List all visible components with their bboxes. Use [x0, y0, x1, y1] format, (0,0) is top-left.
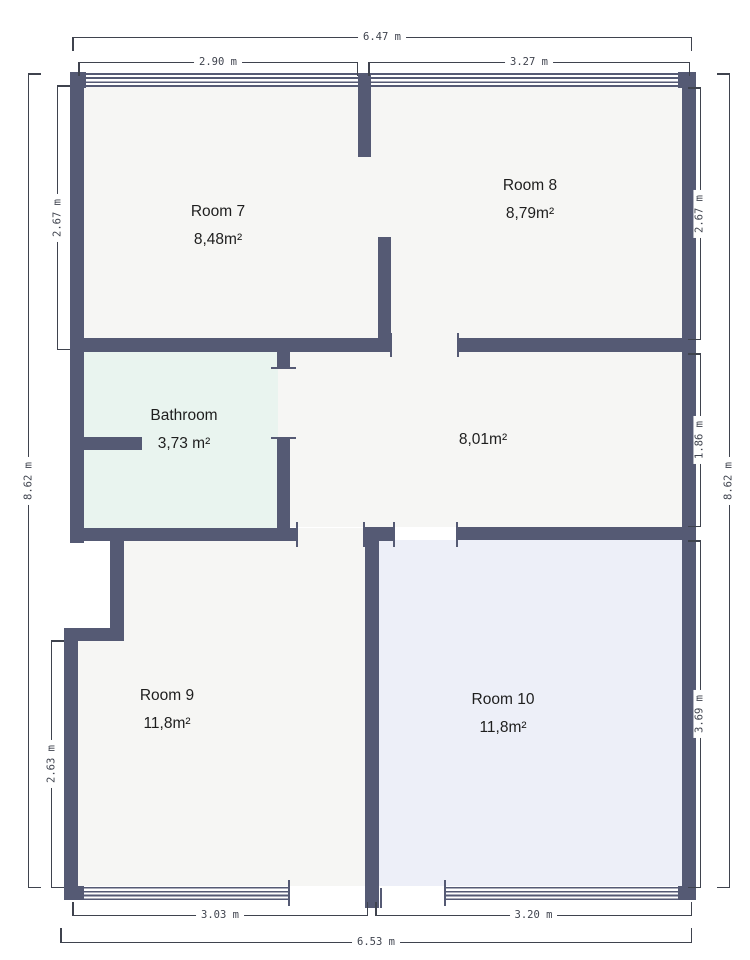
door-jamb-hall-top-left	[390, 333, 392, 357]
dimension-right-lower: 3.69 m	[688, 540, 701, 888]
door-jamb-bathroom-top	[271, 367, 296, 369]
dimension-left-upper: 2.67 m	[57, 85, 70, 350]
dimension-bottom-left-label: 3.03 m	[196, 908, 244, 923]
wall-room9-room10-divider	[365, 540, 379, 886]
dimension-left-total-label: 8.62 m	[23, 457, 36, 505]
dimension-left-lower-label: 2.63 m	[46, 740, 59, 788]
label-hall: 8,01m²	[459, 430, 507, 449]
door-jamb-bathroom-bottom	[271, 437, 296, 439]
wall-middle-left	[84, 338, 390, 352]
wall-corner-bottom-left	[64, 886, 84, 900]
wall-exterior-left-lower	[64, 628, 78, 900]
wall-bathroom-right-lower	[277, 437, 290, 541]
door-jamb-hall-top-right	[457, 333, 459, 357]
dimension-top-right-label: 3.27 m	[505, 55, 553, 70]
hall-area: 8,01m²	[459, 430, 507, 449]
dimension-top-total-label: 6.47 m	[358, 30, 406, 45]
dimension-top-right: 3.27 m	[368, 62, 690, 76]
floor-plan: 6.47 m 2.90 m 3.27 m 3.03 m 3.20 m 6.53 …	[0, 0, 750, 960]
room7-name: Room 7	[191, 202, 245, 221]
dimension-bottom-right: 3.20 m	[375, 902, 692, 916]
floor-room9-upper	[124, 528, 365, 641]
room8-area: 8,79m²	[503, 204, 557, 223]
wall-exterior-left-upper	[70, 72, 84, 543]
dimension-bottom-left: 3.03 m	[72, 902, 368, 916]
label-room10: Room 10 11,8m²	[472, 690, 535, 737]
wall-hall-bottom-junction	[363, 527, 393, 541]
wall-step-vertical	[110, 528, 124, 641]
dimension-left-total: 8.62 m	[28, 73, 41, 888]
dimension-bottom-right-label: 3.20 m	[510, 908, 558, 923]
bathroom-area: 3,73 m²	[150, 434, 217, 453]
wall-corner-bottom-right	[678, 886, 696, 900]
room7-area: 8,48m²	[191, 230, 245, 249]
label-room9: Room 9 11,8m²	[140, 686, 194, 733]
dimension-top-left-label: 2.90 m	[194, 55, 242, 70]
room9-name: Room 9	[140, 686, 194, 705]
label-room7: Room 7 8,48m²	[191, 202, 245, 249]
wall-room7-room8-upper-stub	[358, 74, 371, 157]
label-room8: Room 8 8,79m²	[503, 176, 557, 223]
room9-area: 11,8m²	[140, 714, 194, 733]
bathroom-name: Bathroom	[150, 406, 217, 425]
wall-hall-bottom-left	[70, 528, 298, 541]
dimension-top-left: 2.90 m	[78, 62, 358, 76]
dimension-left-upper-label: 2.67 m	[52, 194, 65, 242]
floor-room9-lower	[78, 641, 365, 886]
window-bottom-right	[446, 887, 678, 900]
room10-name: Room 10	[472, 690, 535, 709]
label-bathroom: Bathroom 3,73 m²	[150, 406, 217, 453]
wall-bathroom-stub	[84, 437, 142, 450]
dimension-right-middle: 1.86 m	[688, 353, 701, 527]
dimension-top-total: 6.47 m	[72, 37, 692, 51]
room8-name: Room 8	[503, 176, 557, 195]
door-jamb-room9-left	[296, 522, 298, 547]
wall-middle-right	[458, 338, 682, 352]
dimension-right-upper-label: 2.67 m	[694, 190, 707, 238]
dimension-right-total: 8.62 m	[717, 73, 730, 888]
dimension-bottom-total: 6.53 m	[60, 928, 692, 943]
dimension-right-middle-label: 1.86 m	[694, 416, 707, 464]
dimension-left-lower: 2.63 m	[51, 640, 64, 888]
door-jamb-room10-left	[393, 522, 395, 547]
wall-hall-bottom-right	[458, 527, 682, 540]
dimension-right-total-label: 8.62 m	[723, 457, 736, 505]
dimension-right-lower-label: 3.69 m	[694, 690, 707, 738]
room10-area: 11,8m²	[472, 718, 535, 737]
dimension-right-upper: 2.67 m	[688, 87, 701, 340]
dimension-bottom-total-label: 6.53 m	[352, 935, 400, 950]
window-bottom-left	[84, 887, 290, 900]
